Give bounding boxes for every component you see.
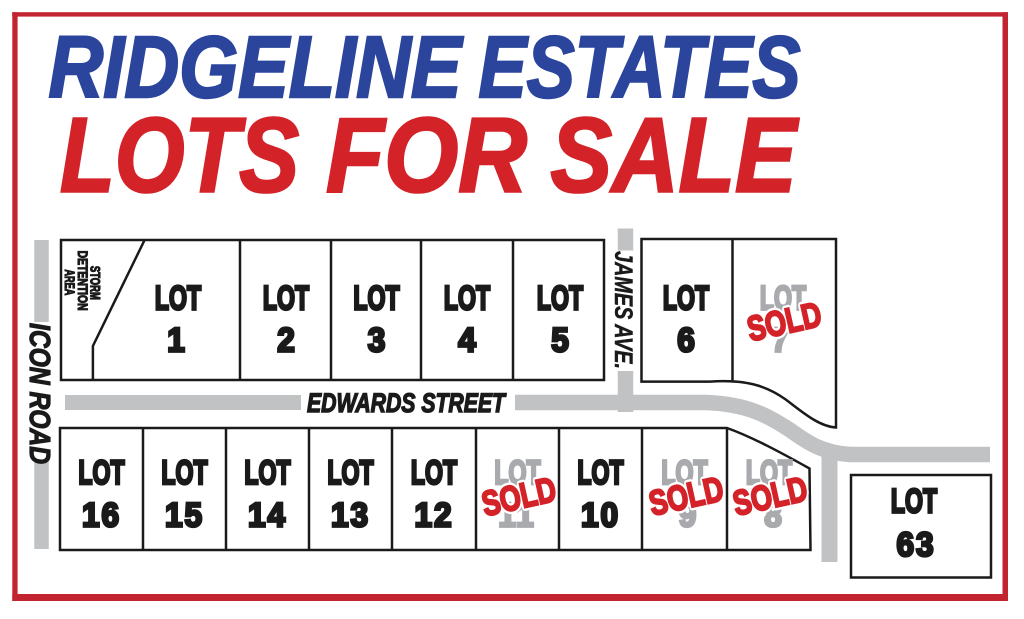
svg-text:10: 10: [581, 495, 620, 533]
svg-text:5: 5: [551, 320, 569, 358]
svg-text:EDWARDS STREET: EDWARDS STREET: [307, 388, 507, 418]
svg-text:AREA: AREA: [62, 269, 77, 295]
svg-text:LOT: LOT: [244, 455, 290, 492]
svg-text:LOT: LOT: [263, 280, 309, 317]
svg-text:3: 3: [368, 320, 386, 358]
svg-text:63: 63: [897, 525, 936, 563]
svg-text:FOR: FOR: [326, 97, 527, 215]
svg-text:ICON ROAD: ICON ROAD: [23, 323, 55, 464]
svg-text:13: 13: [331, 495, 370, 533]
svg-text:1: 1: [167, 320, 185, 358]
svg-text:LOT: LOT: [411, 455, 457, 492]
svg-text:LOT: LOT: [537, 280, 583, 317]
svg-text:16: 16: [82, 495, 121, 533]
svg-text:LOTS: LOTS: [60, 97, 299, 215]
svg-text:LOT: LOT: [78, 455, 124, 492]
svg-text:LOT: LOT: [663, 280, 709, 317]
svg-text:4: 4: [458, 320, 476, 358]
svg-text:12: 12: [415, 495, 454, 533]
svg-text:LOT: LOT: [161, 455, 207, 492]
svg-text:LOT: LOT: [327, 455, 373, 492]
svg-text:15: 15: [165, 495, 204, 533]
svg-text:LOT: LOT: [444, 280, 490, 317]
svg-text:LOT: LOT: [891, 483, 937, 520]
svg-text:2: 2: [277, 320, 295, 358]
svg-text:SALE: SALE: [551, 97, 800, 215]
svg-text:14: 14: [248, 495, 287, 533]
svg-text:JAMES AVE.: JAMES AVE.: [609, 251, 637, 369]
svg-text:LOT: LOT: [353, 280, 399, 317]
svg-text:6: 6: [677, 320, 695, 358]
svg-text:LOT: LOT: [155, 280, 201, 317]
svg-text:LOT: LOT: [577, 455, 623, 492]
